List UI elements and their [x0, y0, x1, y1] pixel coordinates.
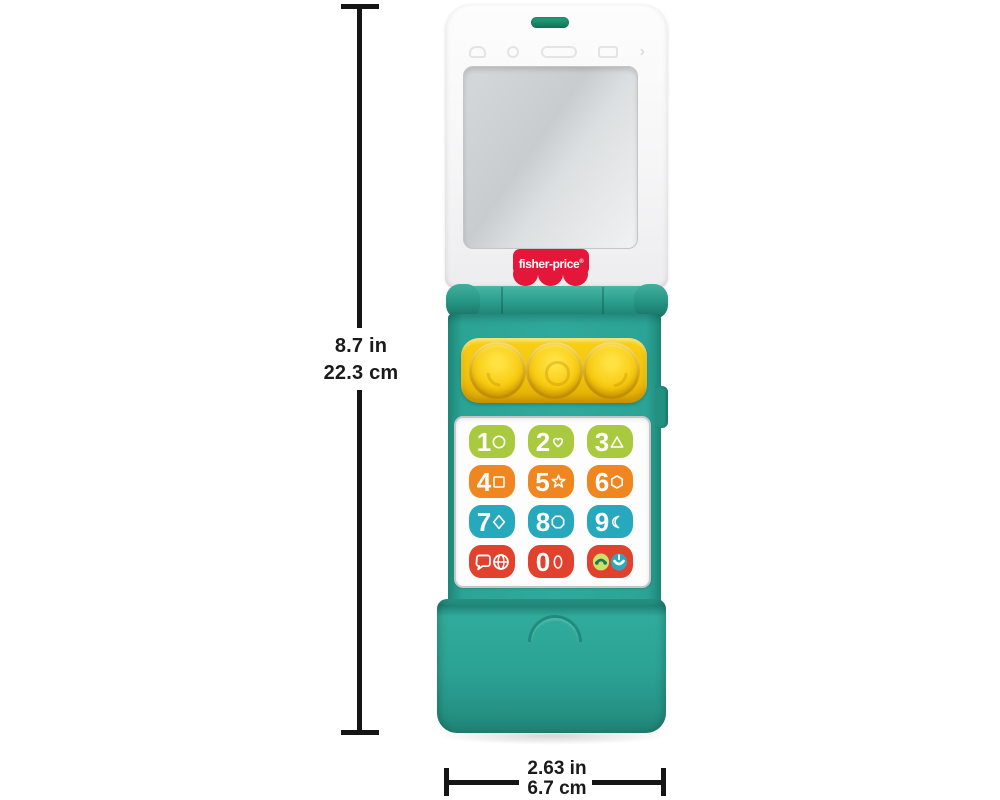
hinge-seam: [602, 287, 604, 316]
diamond-shape-icon: [491, 514, 507, 530]
height-line-upper-segment: [357, 7, 362, 328]
key-0-label: 0: [536, 549, 549, 575]
height-line-lower-segment: [357, 390, 362, 732]
key-0: 0: [528, 545, 574, 578]
key-1: 1: [469, 425, 515, 458]
key-9: 9: [587, 505, 633, 538]
key-language: [469, 545, 515, 578]
indicator-light: [531, 17, 569, 28]
width-centimeters-label: 6.7 cm: [518, 779, 596, 799]
key-6: 6: [587, 465, 633, 498]
octagon-shape-icon: [550, 514, 566, 530]
star-shape-icon: [550, 473, 567, 490]
oval-shape-icon: [550, 553, 566, 571]
key-8-label: 8: [536, 509, 549, 535]
crescent-moon-icon: [609, 514, 625, 530]
key-7: 7: [469, 505, 515, 538]
width-inches-label: 2.63 in: [518, 759, 596, 779]
emboss-screen-icon: [541, 46, 577, 58]
key-6-label: 6: [595, 469, 608, 495]
product-dimension-diagram: 8.7 in 22.3 cm 2.63 in 6.7 cm › fisher-p…: [0, 0, 1000, 800]
circle-shape-icon: [491, 434, 507, 450]
emboss-battery-icon: [598, 46, 618, 58]
key-2-label: 2: [536, 429, 549, 455]
roller-button-left: [469, 342, 526, 399]
emboss-phone-icon: [469, 46, 486, 58]
height-centimeters-label: 22.3 cm: [300, 360, 422, 387]
key-2: 2: [528, 425, 574, 458]
height-line-bottom-cap: [341, 730, 379, 735]
brand-name: fisher-price: [519, 257, 580, 271]
key-3-label: 3: [595, 429, 608, 455]
roller-button-center: [526, 342, 583, 399]
registered-mark: ®: [579, 259, 583, 265]
key-4: 4: [469, 465, 515, 498]
keypad-grid: 1 2 3 4 5 6 7 8: [469, 425, 633, 578]
height-inches-label: 8.7 in: [300, 333, 422, 360]
emboss-signal-icon: [507, 46, 519, 58]
key-7-label: 7: [477, 509, 490, 535]
key-call: [587, 545, 633, 578]
key-3: 3: [587, 425, 633, 458]
width-line-right-segment: [592, 780, 662, 785]
key-5: 5: [528, 465, 574, 498]
heart-shape-icon: [550, 434, 566, 450]
width-line-left-segment: [449, 780, 519, 785]
call-answer-hangup-icon: [592, 552, 628, 572]
side-button: [655, 386, 668, 428]
width-dimension-label: 2.63 in 6.7 cm: [518, 759, 596, 799]
mirror-screen: [463, 66, 638, 249]
width-line-right-cap: [661, 768, 666, 796]
height-dimension-label: 8.7 in 22.3 cm: [300, 333, 422, 387]
roller-button-right: [583, 342, 640, 399]
hexagon-shape-icon: [609, 474, 625, 490]
triangle-shape-icon: [609, 434, 625, 450]
key-9-label: 9: [595, 509, 608, 535]
key-1-label: 1: [477, 429, 490, 455]
logo-text: fisher-price®: [513, 249, 589, 275]
hinge-seam: [501, 287, 503, 316]
key-8: 8: [528, 505, 574, 538]
key-5-label: 5: [535, 469, 548, 495]
key-4-label: 4: [477, 469, 490, 495]
fisher-price-logo: fisher-price®: [513, 249, 589, 286]
embossed-status-band: ›: [463, 41, 651, 63]
emboss-arrow-icon: ›: [640, 46, 645, 58]
speech-bubble-globe-icon: [474, 552, 510, 572]
square-shape-icon: [491, 474, 507, 490]
